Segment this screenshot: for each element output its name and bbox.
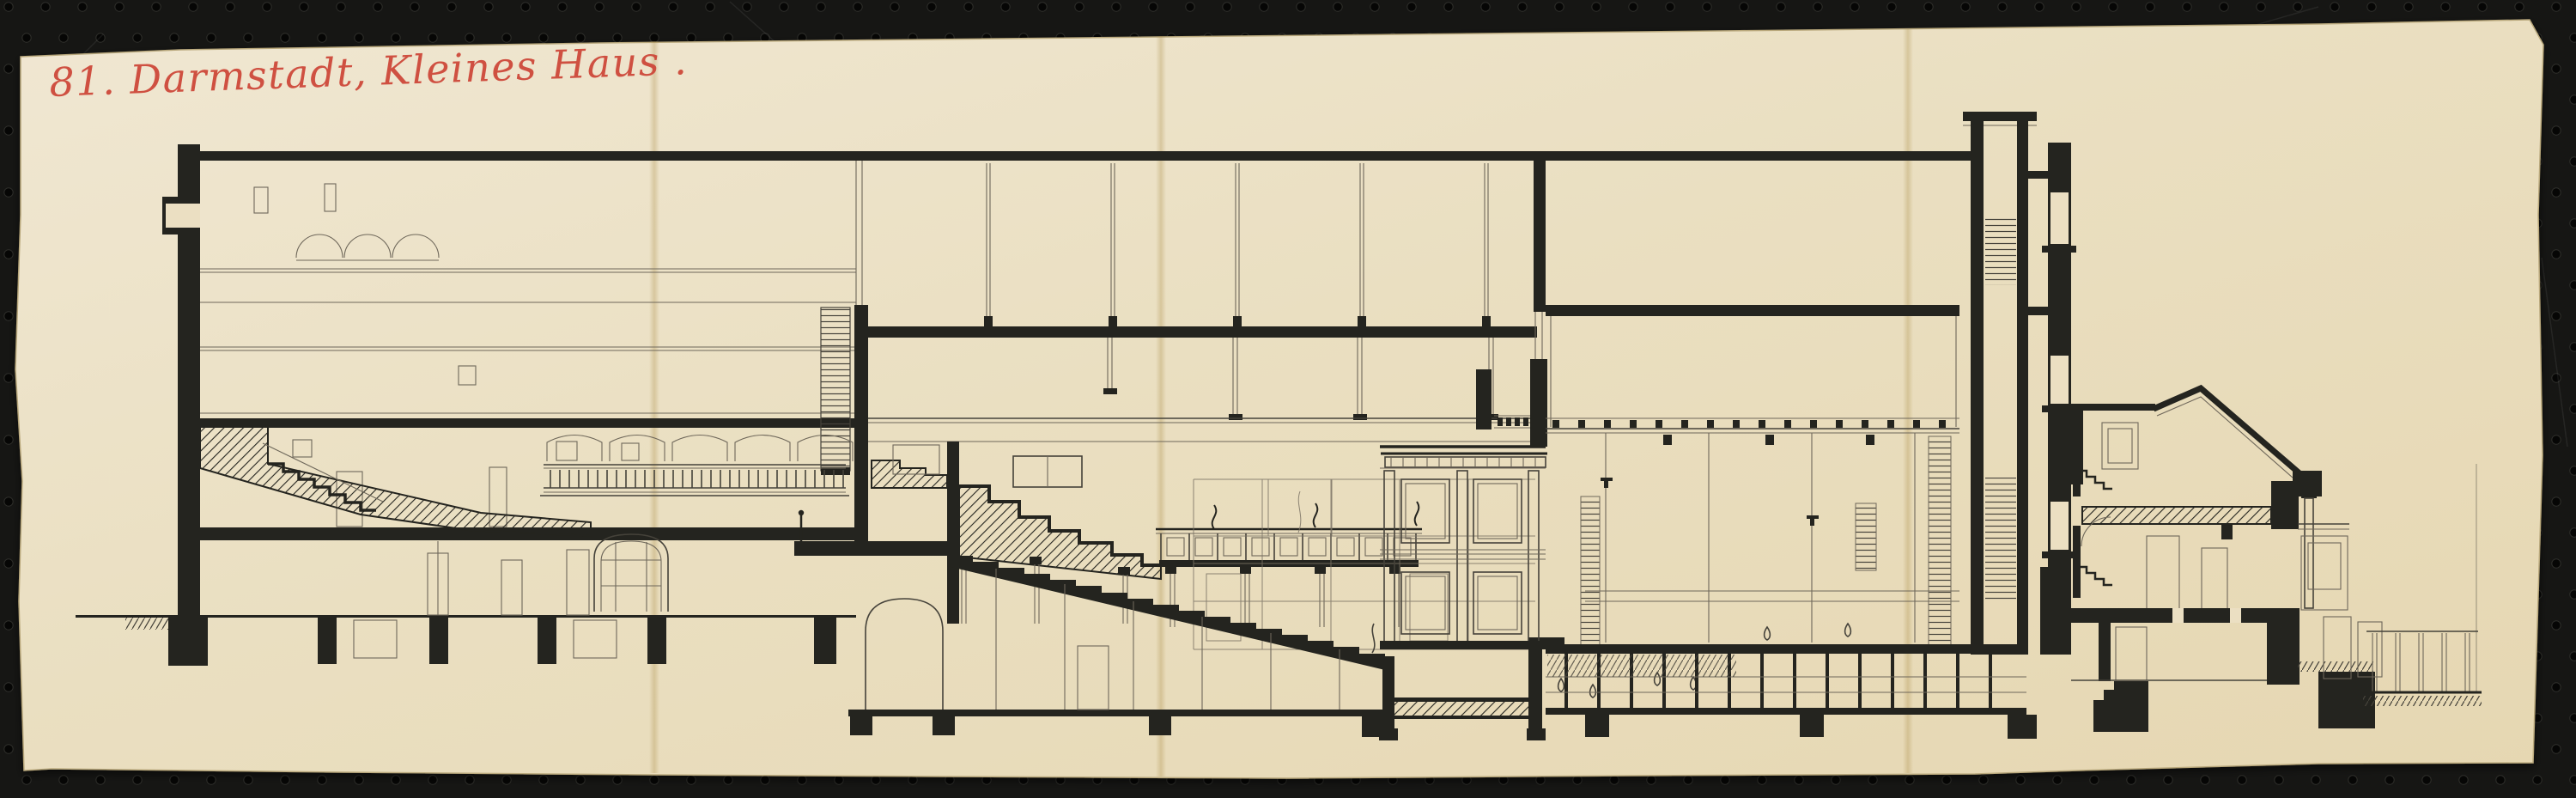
main-roof-slab: [200, 151, 1971, 161]
fold-crease: [1156, 36, 1166, 777]
scanned-drawing-photo: 81. Darmstadt, Kleines Haus .: [0, 0, 2576, 798]
stair-shaft: [821, 308, 850, 471]
stage-floor: [1546, 644, 2026, 654]
proscenium-wall: [1534, 161, 1546, 312]
auditorium-ceiling-slab: [868, 326, 1537, 338]
paper-sheet: [15, 20, 2543, 778]
section-drawing: 81. Darmstadt, Kleines Haus .: [0, 0, 2576, 798]
auditorium-rear-wall: [854, 305, 868, 542]
fly-tower-floor: [1546, 305, 1959, 316]
fold-crease: [1903, 29, 1913, 773]
balcony-support-wall: [947, 442, 959, 624]
